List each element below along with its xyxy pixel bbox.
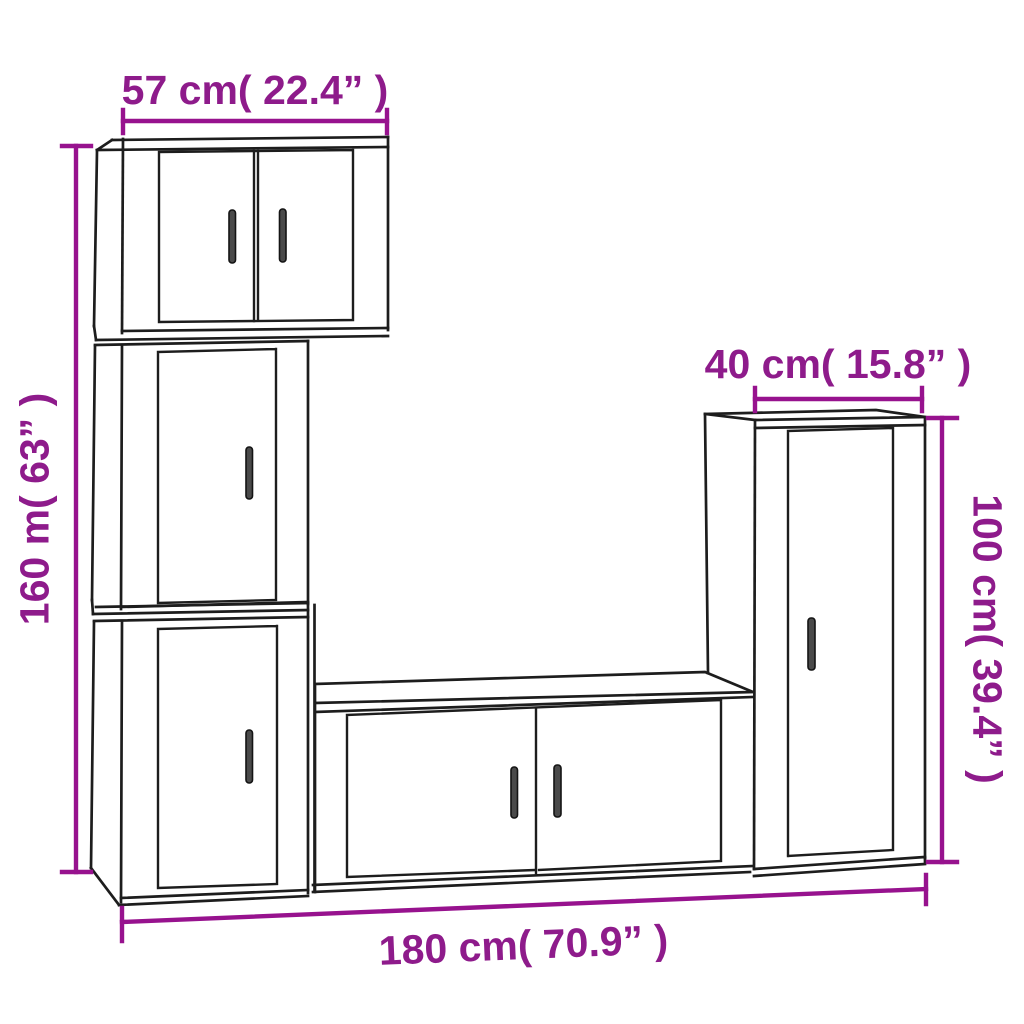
- left-side-outer-edge: [91, 622, 94, 868]
- top-surface: [705, 410, 925, 420]
- door-opening: [159, 150, 353, 322]
- top-panel-left-chamfer: [97, 140, 112, 150]
- front-left-corner: [121, 346, 122, 609]
- door-handle-left: [229, 210, 236, 263]
- bottom-panel-edge: [96, 336, 388, 340]
- cabinet-middle-left-one-door: [92, 341, 308, 614]
- door-handle: [808, 618, 815, 670]
- door-divider: [254, 151, 258, 321]
- front-left-corner: [121, 622, 122, 902]
- door-opening: [788, 428, 893, 856]
- bottom-left-chamfer: [94, 326, 96, 340]
- dimension-right-depth: 40 cm( 15.8” ): [705, 341, 972, 411]
- top-panel-edge: [95, 341, 308, 345]
- furniture-dimension-diagram: 57 cm( 22.4” ) 160 m( 63” ) 40 cm( 15.8”…: [0, 0, 1024, 1024]
- door-handle-right: [280, 209, 287, 262]
- top-panel-back-edge: [112, 137, 388, 140]
- cabinet-center-tv-stand: [313, 672, 753, 892]
- front-bottom-edge: [754, 857, 925, 869]
- dimension-label-bottom-width: 180 cm( 70.9” ): [378, 916, 669, 974]
- dimension-label-left-height: 160 m( 63” ): [11, 393, 57, 625]
- left-side-outer-edge: [705, 414, 708, 673]
- left-side-outer-edge: [94, 151, 97, 326]
- top-panel-front-edge: [94, 617, 308, 621]
- left-side-outer-edge: [92, 346, 95, 600]
- front-left-corner: [754, 420, 755, 869]
- door-opening: [158, 349, 276, 603]
- top-panel-front-edge: [755, 425, 925, 428]
- top-panel-front-edge: [315, 697, 753, 712]
- diagram-canvas: 57 cm( 22.4” ) 160 m( 63” ) 40 cm( 15.8”…: [0, 0, 1024, 1024]
- dimension-bottom-width: 180 cm( 70.9” ): [122, 875, 926, 974]
- door-opening: [158, 626, 277, 888]
- dimension-left-height: 160 m( 63” ): [11, 146, 91, 872]
- door-opening: [347, 700, 721, 877]
- door-handle: [246, 730, 253, 783]
- bottom-left-chamfer: [92, 600, 93, 614]
- dimension-top-width: 57 cm( 22.4” ): [122, 67, 389, 133]
- dimension-right-height: 100 cm( 39.4” ): [928, 418, 1011, 862]
- front-bottom-edge: [122, 328, 388, 331]
- door-handle: [246, 447, 253, 499]
- dimension-label-right-height: 100 cm( 39.4” ): [965, 494, 1011, 783]
- dimension-label-right-depth: 40 cm( 15.8” ): [705, 341, 972, 387]
- dimension-label-top-width: 57 cm( 22.4” ): [122, 67, 389, 113]
- cabinet-right-tall-one-door: [705, 410, 925, 876]
- front-left-corner: [122, 139, 123, 333]
- door-handle-right: [554, 765, 561, 817]
- cabinet-bottom-left-one-door: [91, 603, 315, 905]
- bottom-left-chamfer: [91, 868, 119, 905]
- door-handle-left: [511, 767, 518, 818]
- cabinet-top-left-two-door: [94, 137, 388, 340]
- bottom-panel-edge: [93, 610, 308, 614]
